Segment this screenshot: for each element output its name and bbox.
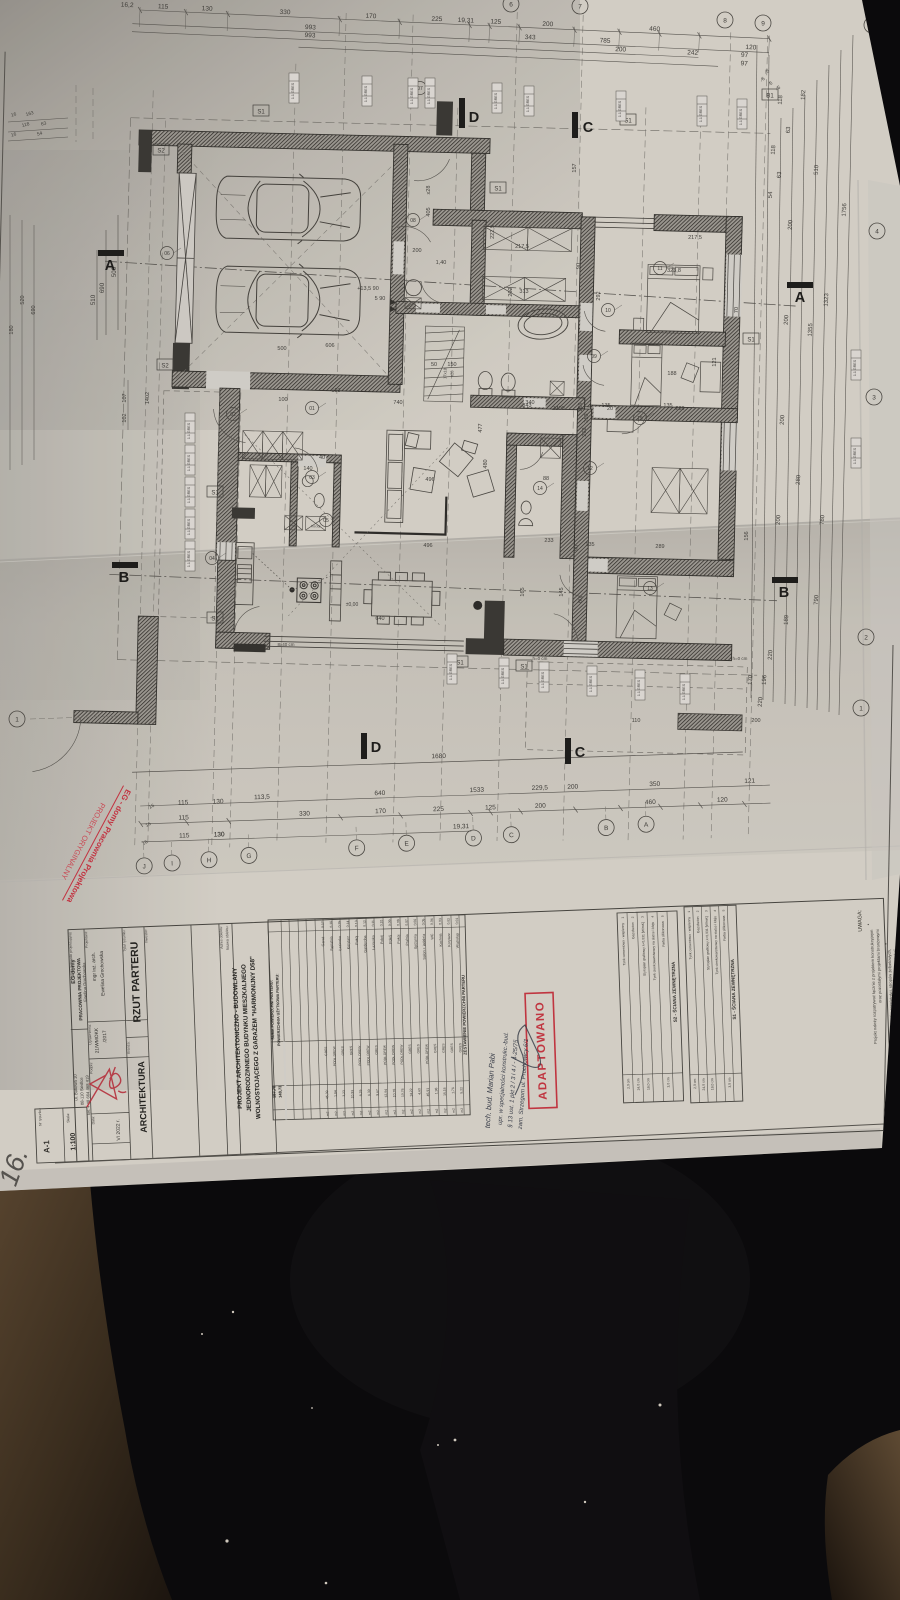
- svg-text:Pral.: Pral.: [290, 524, 297, 528]
- svg-text:217,5: 217,5: [515, 244, 529, 250]
- svg-text:1323: 1323: [824, 292, 831, 306]
- svg-text:Data:: Data:: [91, 1116, 95, 1125]
- svg-text:PODŁ.DREW: PODŁ.DREW: [357, 1045, 362, 1066]
- svg-text:3: 3: [872, 395, 876, 402]
- svg-text:GRES: GRES: [408, 1043, 412, 1053]
- svg-text:1.1 GRES: 1.1 GRES: [853, 447, 857, 464]
- svg-text:WC: WC: [430, 933, 434, 939]
- svg-text:1756: 1756: [842, 202, 849, 216]
- svg-text:PODŁ.DREW: PODŁ.DREW: [366, 1044, 371, 1065]
- svg-text:B: B: [119, 570, 129, 586]
- svg-text:330: 330: [279, 9, 291, 17]
- svg-text:289: 289: [655, 544, 664, 550]
- svg-text:Skala:: Skala:: [66, 1113, 70, 1123]
- svg-text:292: 292: [596, 291, 602, 300]
- svg-text:m2: m2: [376, 1110, 380, 1115]
- svg-text:14: 14: [537, 486, 543, 492]
- svg-text:1402: 1402: [145, 392, 151, 404]
- svg-text:7: 7: [578, 4, 582, 11]
- svg-text:1533: 1533: [470, 787, 485, 794]
- svg-text:1.1 GRES: 1.1 GRES: [291, 82, 295, 99]
- svg-text:m2: m2: [410, 1109, 414, 1114]
- svg-text:0.12: 0.12: [363, 920, 367, 927]
- svg-text:h=0 cm: h=0 cm: [533, 656, 548, 661]
- svg-text:8: 8: [723, 18, 727, 25]
- svg-text:1:100: 1:100: [70, 1132, 78, 1150]
- svg-text:0.03: 0.03: [438, 918, 442, 925]
- svg-text:993: 993: [305, 24, 317, 32]
- svg-text:340: 340: [525, 400, 534, 406]
- svg-text:233: 233: [544, 538, 553, 544]
- svg-text:Korytarz: Korytarz: [346, 936, 350, 950]
- svg-text:640: 640: [374, 790, 385, 797]
- svg-text:54: 54: [768, 191, 774, 199]
- svg-text:1,40: 1,40: [436, 260, 447, 266]
- svg-text:2: 2: [864, 635, 868, 642]
- svg-text:Pokój: Pokój: [397, 934, 401, 943]
- svg-text:1.1 GRES: 1.1 GRES: [739, 108, 743, 125]
- svg-text:Kuchnia: Kuchnia: [439, 933, 443, 946]
- svg-text:1.1 GRES: 1.1 GRES: [187, 454, 191, 471]
- svg-text:115: 115: [178, 814, 189, 821]
- svg-text:220: 220: [758, 696, 765, 707]
- svg-text:S1: S1: [456, 661, 464, 667]
- svg-text:217,5: 217,5: [688, 235, 702, 241]
- svg-text:90: 90: [574, 545, 580, 551]
- svg-text:0.08: 0.08: [396, 919, 400, 926]
- svg-text:225: 225: [433, 806, 444, 813]
- svg-text:Pokój: Pokój: [388, 935, 392, 944]
- svg-text:8,29: 8,29: [359, 1089, 363, 1096]
- svg-text:1680: 1680: [431, 753, 446, 760]
- svg-text:12: 12: [587, 466, 593, 472]
- svg-text:D: D: [471, 835, 476, 842]
- svg-text:182: 182: [801, 89, 808, 100]
- svg-text:18,0 cm: 18,0 cm: [646, 1078, 650, 1090]
- svg-text:0.17: 0.17: [321, 921, 325, 928]
- svg-text:150: 150: [447, 362, 456, 368]
- svg-text:289: 289: [675, 406, 684, 412]
- svg-text:3,0 cm: 3,0 cm: [727, 1077, 731, 1087]
- svg-text:130: 130: [214, 831, 225, 838]
- svg-text:63: 63: [786, 126, 792, 134]
- svg-text:496: 496: [423, 543, 432, 549]
- svg-text:D: D: [371, 740, 381, 756]
- svg-text:125: 125: [490, 18, 502, 26]
- svg-text:x28: x28: [449, 370, 454, 377]
- svg-text:m2: m2: [342, 1111, 346, 1116]
- svg-text:m2: m2: [452, 1108, 456, 1113]
- svg-text:0.07: 0.07: [405, 919, 409, 926]
- svg-text:130: 130: [213, 798, 224, 805]
- svg-text:Wiatrołap: Wiatrołap: [455, 933, 459, 948]
- svg-text:S1: S1: [211, 617, 219, 623]
- svg-text:45,91: 45,91: [426, 1088, 430, 1097]
- svg-text:510: 510: [90, 294, 97, 305]
- svg-text:1.1 GRES: 1.1 GRES: [187, 422, 191, 439]
- svg-text:100: 100: [278, 397, 287, 403]
- svg-text:200: 200: [542, 21, 554, 29]
- svg-text:115: 115: [178, 799, 189, 806]
- svg-text:4: 4: [875, 229, 879, 236]
- svg-text:m2: m2: [368, 1110, 372, 1115]
- svg-text:140: 140: [303, 466, 312, 472]
- svg-text:GRES: GRES: [441, 1043, 445, 1053]
- svg-text:10,93: 10,93: [350, 1090, 354, 1099]
- svg-text:97: 97: [740, 60, 748, 67]
- svg-text:GRES: GRES: [349, 1045, 353, 1055]
- svg-text:115: 115: [179, 832, 190, 839]
- svg-text:200: 200: [751, 718, 760, 724]
- svg-text:313: 313: [519, 289, 528, 295]
- svg-text:0.14: 0.14: [346, 920, 350, 927]
- svg-text:19,31: 19,31: [453, 823, 470, 831]
- svg-text:640: 640: [375, 616, 384, 622]
- svg-text:6,39: 6,39: [367, 1089, 371, 1096]
- svg-text:J: J: [142, 863, 145, 870]
- svg-text:G: G: [246, 853, 251, 860]
- svg-text:S1: S1: [257, 110, 265, 116]
- svg-text:200: 200: [412, 248, 421, 254]
- svg-text:PODŁ.DREW: PODŁ.DREW: [399, 1044, 404, 1065]
- svg-text:m2: m2: [351, 1111, 355, 1116]
- svg-text:1.1 GRES: 1.1 GRES: [449, 663, 453, 680]
- svg-text:3,0 cm: 3,0 cm: [666, 1077, 670, 1087]
- svg-text:B: B: [604, 825, 609, 832]
- svg-text:03: 03: [309, 475, 315, 481]
- svg-text:0.13: 0.13: [354, 920, 358, 927]
- svg-text:GRES: GRES: [450, 1042, 454, 1052]
- svg-text:242: 242: [687, 49, 699, 57]
- svg-text:Projektant:: Projektant:: [84, 931, 89, 948]
- svg-text:16,2: 16,2: [121, 2, 134, 10]
- svg-text:120: 120: [745, 44, 757, 52]
- svg-text:0.10: 0.10: [379, 920, 383, 927]
- svg-text:188: 188: [667, 371, 676, 377]
- svg-text:B1: B1: [766, 94, 774, 100]
- svg-text:0.09: 0.09: [388, 919, 392, 926]
- svg-text:PODŁ.DREW: PODŁ.DREW: [332, 1045, 337, 1066]
- svg-text:330: 330: [299, 810, 310, 817]
- svg-text:1.1 GRES: 1.1 GRES: [682, 683, 686, 700]
- svg-text:200: 200: [535, 803, 546, 810]
- svg-text:+13,5 90: +13,5 90: [357, 286, 379, 292]
- svg-text:40: 40: [319, 455, 325, 461]
- svg-text:50: 50: [431, 362, 437, 368]
- svg-text:D: D: [469, 110, 479, 126]
- svg-text:480: 480: [483, 459, 489, 468]
- svg-text:121: 121: [744, 778, 755, 785]
- svg-text:1.1 GRES: 1.1 GRES: [541, 671, 545, 688]
- svg-text:1.1 GRES: 1.1 GRES: [410, 87, 414, 104]
- svg-text:Uprawnienia:: Uprawnienia:: [88, 1024, 93, 1045]
- svg-text:200: 200: [776, 514, 783, 525]
- svg-text:88: 88: [543, 476, 549, 482]
- svg-text:1: 1: [15, 717, 19, 724]
- svg-text:90: 90: [576, 263, 582, 269]
- svg-text:m2: m2: [435, 1108, 439, 1113]
- svg-text:4,60: 4,60: [417, 1088, 421, 1095]
- svg-text:0.04: 0.04: [430, 918, 434, 925]
- svg-text:189: 189: [784, 614, 791, 625]
- svg-text:06: 06: [164, 251, 170, 257]
- svg-text:m2: m2: [443, 1108, 447, 1113]
- svg-text:Korytarz: Korytarz: [447, 933, 451, 947]
- svg-text:9: 9: [761, 21, 765, 28]
- svg-text:15: 15: [637, 416, 643, 422]
- svg-text:220: 220: [768, 649, 775, 660]
- svg-text:±0,00: ±0,00: [346, 602, 359, 608]
- svg-text:200: 200: [567, 783, 578, 790]
- svg-text:Gazobeton: Gazobeton: [696, 916, 701, 933]
- svg-text:10: 10: [605, 308, 611, 314]
- svg-text:63: 63: [777, 171, 783, 179]
- svg-text:18,0 cm: 18,0 cm: [710, 1078, 714, 1090]
- svg-text:323,8: 323,8: [667, 268, 681, 274]
- svg-text:S2: S2: [157, 149, 165, 155]
- svg-text:193: 193: [331, 388, 340, 394]
- svg-text:8x40 cm: 8x40 cm: [277, 642, 294, 647]
- svg-text:135: 135: [585, 542, 594, 548]
- svg-text:S1: S1: [211, 491, 219, 497]
- svg-text:B: B: [779, 585, 789, 601]
- svg-text:PODŁ.DREW: PODŁ.DREW: [391, 1044, 396, 1065]
- svg-text:200: 200: [784, 314, 791, 325]
- svg-text:Łazienka: Łazienka: [338, 936, 342, 950]
- svg-text:780: 780: [820, 514, 827, 525]
- svg-text:A: A: [105, 258, 116, 274]
- svg-text:Spiżarnia: Spiżarnia: [413, 934, 417, 949]
- svg-text:0.06: 0.06: [413, 919, 417, 926]
- svg-text:Sypialnia: Sypialnia: [329, 936, 333, 951]
- svg-text:148,73: 148,73: [277, 1085, 282, 1098]
- svg-text:Kocioł: Kocioł: [311, 524, 321, 528]
- svg-text:02: 02: [230, 412, 236, 418]
- svg-text:S1: S1: [520, 665, 528, 671]
- svg-text:21/WMOKK: 21/WMOKK: [94, 1027, 101, 1053]
- svg-text:200: 200: [788, 219, 795, 230]
- svg-text:1.1 GRES: 1.1 GRES: [853, 359, 857, 376]
- svg-text:1.1 GRES: 1.1 GRES: [187, 550, 191, 567]
- svg-text:0.02: 0.02: [447, 918, 451, 925]
- svg-text:157: 157: [572, 163, 578, 172]
- svg-text:Inwestor:: Inwestor:: [144, 929, 149, 944]
- svg-text:05: 05: [323, 518, 329, 524]
- svg-text:UWAGA:: UWAGA:: [857, 910, 864, 932]
- svg-text:PODŁ.DREW: PODŁ.DREW: [383, 1044, 388, 1065]
- svg-text:9,67: 9,67: [375, 1089, 379, 1096]
- svg-text:Podpis:: Podpis:: [89, 1062, 93, 1074]
- svg-text:135: 135: [663, 403, 672, 409]
- svg-text:118: 118: [778, 94, 785, 105]
- svg-text:m2: m2: [334, 1111, 338, 1116]
- svg-text:14,22: 14,22: [409, 1088, 413, 1097]
- svg-text:Gazobeton: Gazobeton: [631, 922, 636, 939]
- svg-text:Tytuł rysunku:: Tytuł rysunku:: [122, 929, 127, 951]
- svg-text:5,22: 5,22: [459, 1087, 463, 1094]
- svg-text:Pokój: Pokój: [380, 935, 384, 944]
- svg-text:229,5: 229,5: [532, 784, 549, 792]
- svg-text:GRES: GRES: [416, 1043, 420, 1053]
- svg-text:m2: m2: [359, 1110, 363, 1115]
- svg-text:60: 60: [578, 597, 584, 603]
- svg-text:0.15: 0.15: [337, 921, 341, 928]
- svg-text:x28: x28: [426, 186, 432, 195]
- svg-text:225: 225: [431, 16, 443, 24]
- svg-text:170: 170: [365, 13, 377, 21]
- svg-text:222,5: 222,5: [490, 225, 496, 239]
- svg-text:6: 6: [509, 2, 513, 9]
- svg-text:520: 520: [20, 295, 26, 304]
- svg-text:200: 200: [780, 414, 787, 425]
- svg-text:m2: m2: [326, 1111, 330, 1116]
- svg-text:1.1 GRES: 1.1 GRES: [501, 667, 505, 684]
- svg-text:10,78: 10,78: [401, 1088, 405, 1097]
- svg-text:F: F: [355, 845, 359, 852]
- svg-text:GRES: GRES: [341, 1045, 345, 1055]
- svg-text:170: 170: [748, 674, 755, 685]
- svg-text:1.1 GRES: 1.1 GRES: [699, 105, 703, 122]
- svg-text:H: H: [207, 857, 212, 864]
- svg-text:17x18: 17x18: [442, 367, 447, 379]
- svg-text:477: 477: [478, 423, 484, 432]
- svg-text:350: 350: [649, 781, 660, 788]
- svg-text:1,84: 1,84: [333, 1090, 337, 1097]
- svg-text:10,78: 10,78: [392, 1089, 396, 1098]
- svg-text:45,39: 45,39: [325, 1090, 329, 1099]
- svg-text:130: 130: [202, 5, 214, 13]
- svg-text:121: 121: [712, 357, 718, 366]
- svg-text:120: 120: [717, 797, 728, 804]
- svg-text:ul. Bukowa 10: ul. Bukowa 10: [73, 1074, 79, 1101]
- svg-text:510: 510: [814, 164, 821, 175]
- svg-text:110: 110: [632, 718, 641, 724]
- svg-text:606: 606: [325, 343, 334, 349]
- svg-text:C: C: [583, 120, 594, 136]
- svg-text:m2: m2: [426, 1109, 430, 1114]
- svg-text:S2: S2: [161, 364, 169, 370]
- svg-text:Pokój: Pokój: [355, 935, 359, 944]
- svg-text:08: 08: [410, 218, 416, 224]
- svg-text:Łazienka: Łazienka: [371, 935, 375, 949]
- svg-text:Salon + jadalnia: Salon + jadalnia: [422, 934, 427, 960]
- svg-text:259: 259: [584, 413, 590, 422]
- svg-text:m2: m2: [401, 1109, 405, 1114]
- svg-text:118: 118: [771, 144, 778, 155]
- svg-text:S1: S1: [494, 187, 502, 193]
- svg-text:m2: m2: [393, 1110, 397, 1115]
- svg-text:1.1 GRES: 1.1 GRES: [618, 100, 622, 117]
- svg-text:1.1 GRES: 1.1 GRES: [637, 679, 641, 696]
- svg-text:170: 170: [375, 808, 386, 815]
- svg-text:196: 196: [762, 674, 769, 685]
- svg-text:2,0 cm: 2,0 cm: [626, 1078, 630, 1088]
- svg-text:1,76: 1,76: [451, 1087, 455, 1094]
- svg-text:VI 2022 r.: VI 2022 r.: [115, 1119, 122, 1141]
- svg-text:790: 790: [814, 594, 821, 605]
- svg-text:343: 343: [525, 34, 537, 42]
- svg-text:993: 993: [304, 32, 316, 40]
- svg-text:/2017: /2017: [102, 1030, 108, 1043]
- svg-text:740: 740: [393, 400, 402, 406]
- svg-text:h=0 cm: h=0 cm: [733, 656, 748, 661]
- svg-text:145: 145: [559, 587, 565, 596]
- svg-text:m2: m2: [384, 1110, 388, 1115]
- svg-text:0.16: 0.16: [329, 921, 333, 928]
- svg-text:785: 785: [599, 37, 611, 45]
- svg-text:1.1 GRES: 1.1 GRES: [187, 518, 191, 535]
- svg-text:Nr rysunku:: Nr rysunku:: [38, 1108, 43, 1127]
- svg-text:5 90: 5 90: [375, 296, 386, 302]
- svg-text:09: 09: [591, 354, 597, 360]
- svg-text:280: 280: [796, 474, 803, 485]
- svg-text:2,0 cm: 2,0 cm: [693, 1078, 697, 1088]
- svg-text:113,5: 113,5: [254, 794, 270, 802]
- svg-text:1,98: 1,98: [434, 1087, 438, 1094]
- svg-text:S1: S1: [747, 338, 755, 344]
- svg-text:187,78: 187,78: [271, 1085, 276, 1098]
- svg-text:690: 690: [99, 282, 106, 293]
- svg-text:m2: m2: [418, 1109, 422, 1114]
- svg-text:C: C: [575, 745, 586, 761]
- svg-text:24,0 cm: 24,0 cm: [701, 1078, 705, 1090]
- svg-text:200: 200: [615, 46, 627, 54]
- svg-text:262: 262: [582, 427, 588, 436]
- svg-text:A: A: [795, 290, 806, 306]
- svg-text:1.1 GRES: 1.1 GRES: [589, 675, 593, 692]
- svg-text:1.1 GRES: 1.1 GRES: [187, 486, 191, 503]
- svg-text:GRES: GRES: [324, 1046, 328, 1056]
- svg-text:Branża:: Branża:: [126, 1041, 130, 1054]
- svg-text:19,31: 19,31: [458, 17, 475, 25]
- svg-text:1.1 GRES: 1.1 GRES: [526, 95, 530, 112]
- svg-text:Garderoba: Garderoba: [363, 935, 367, 952]
- svg-text:GRES: GRES: [433, 1043, 437, 1053]
- svg-text:496: 496: [425, 477, 434, 483]
- svg-text:24,0 cm: 24,0 cm: [636, 1078, 640, 1090]
- svg-text:15,18: 15,18: [443, 1087, 447, 1096]
- svg-text:460: 460: [645, 799, 656, 806]
- svg-text:12,04: 12,04: [384, 1089, 388, 1098]
- svg-text:0.05: 0.05: [421, 918, 425, 925]
- svg-text:500: 500: [277, 346, 286, 352]
- svg-text:200: 200: [555, 406, 564, 412]
- svg-text:1355: 1355: [808, 322, 815, 336]
- svg-text:Garaż: Garaż: [321, 936, 325, 946]
- svg-text:A-1: A-1: [42, 1140, 52, 1154]
- svg-text:97: 97: [741, 52, 749, 59]
- svg-text:mgr inż. arch.: mgr inż. arch.: [91, 952, 98, 981]
- svg-text:13: 13: [647, 586, 653, 592]
- svg-text:202: 202: [508, 287, 514, 296]
- svg-text:11: 11: [657, 266, 662, 272]
- svg-text:0.01: 0.01: [455, 918, 459, 925]
- svg-text:01: 01: [309, 406, 315, 412]
- svg-text:1: 1: [859, 706, 863, 713]
- svg-text:1.1 GRES: 1.1 GRES: [364, 85, 368, 102]
- svg-text:125: 125: [485, 804, 496, 811]
- svg-text:156: 156: [744, 531, 750, 540]
- svg-text:3,23: 3,23: [342, 1090, 346, 1097]
- svg-text:04: 04: [209, 556, 215, 562]
- svg-text:460: 460: [649, 26, 661, 34]
- svg-text:107: 107: [122, 393, 128, 402]
- svg-text:Pralnia: Pralnia: [405, 934, 409, 945]
- svg-text:GRES: GRES: [374, 1044, 378, 1054]
- svg-text:269: 269: [578, 402, 584, 411]
- svg-text:1.1 GRES: 1.1 GRES: [494, 92, 498, 109]
- svg-text:70: 70: [734, 307, 740, 313]
